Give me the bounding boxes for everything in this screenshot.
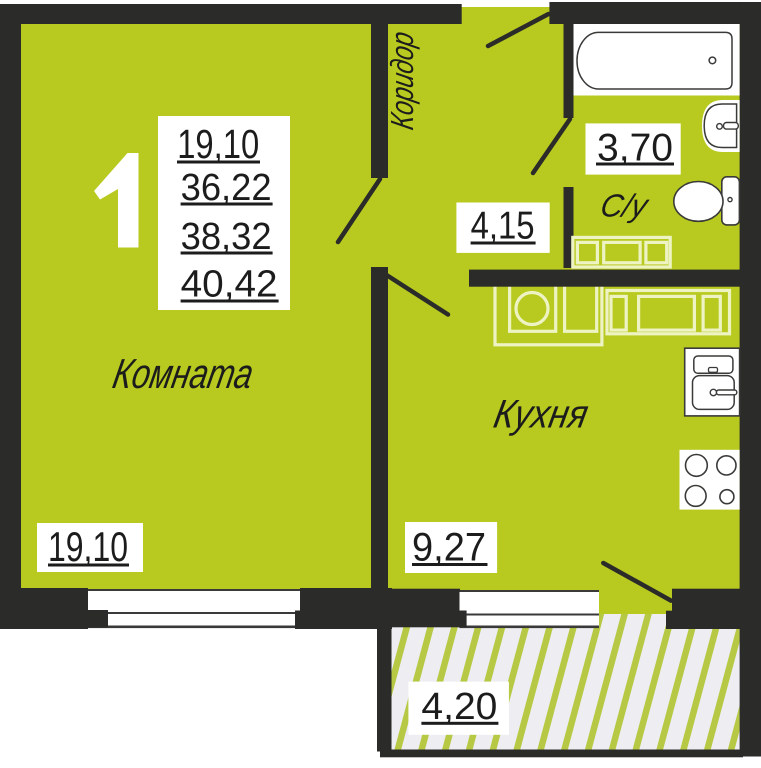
svg-text:19,10: 19,10 bbox=[177, 121, 259, 167]
svg-text:Комната: Комната bbox=[109, 350, 257, 397]
svg-text:Коридор: Коридор bbox=[384, 28, 420, 132]
svg-text:9,27: 9,27 bbox=[412, 526, 486, 570]
svg-text:19,10: 19,10 bbox=[48, 523, 128, 570]
svg-text:Кухня: Кухня bbox=[490, 391, 592, 437]
svg-text:4,15: 4,15 bbox=[471, 205, 535, 248]
svg-text:4,20: 4,20 bbox=[421, 686, 497, 728]
svg-text:40,42: 40,42 bbox=[181, 264, 278, 306]
svg-text:С/у: С/у bbox=[598, 188, 653, 224]
